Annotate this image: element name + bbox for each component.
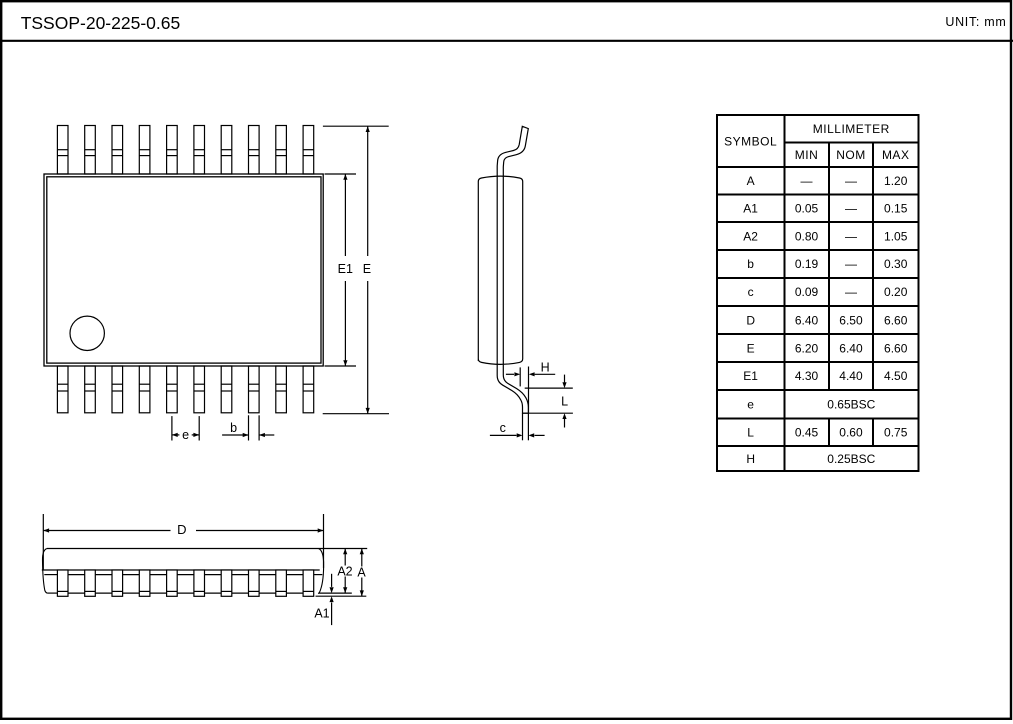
svg-text:A1: A1: [314, 606, 329, 620]
svg-text:SYMBOL: SYMBOL: [724, 135, 777, 149]
svg-text:6.20: 6.20: [795, 341, 819, 355]
svg-text:0.75: 0.75: [884, 426, 908, 440]
svg-text:0.25BSC: 0.25BSC: [827, 452, 875, 466]
svg-text:E1: E1: [743, 369, 758, 383]
svg-text:c: c: [748, 285, 754, 299]
svg-text:—: —: [845, 202, 857, 216]
svg-text:6.40: 6.40: [839, 341, 863, 355]
svg-text:—: —: [845, 285, 857, 299]
svg-text:0.15: 0.15: [884, 202, 908, 216]
svg-text:6.40: 6.40: [795, 313, 819, 327]
svg-text:E: E: [363, 262, 371, 276]
svg-text:A2: A2: [743, 229, 758, 243]
svg-text:0.05: 0.05: [795, 202, 819, 216]
svg-text:MAX: MAX: [882, 148, 910, 162]
svg-text:TSSOP-20-225-0.65: TSSOP-20-225-0.65: [21, 13, 181, 33]
svg-text:0.09: 0.09: [795, 285, 819, 299]
svg-text:A2: A2: [337, 564, 352, 578]
svg-text:6.60: 6.60: [884, 341, 908, 355]
svg-text:—: —: [845, 174, 857, 188]
svg-text:—: —: [801, 174, 813, 188]
svg-text:UNIT: mm: UNIT: mm: [945, 15, 1006, 29]
svg-text:0.30: 0.30: [884, 257, 908, 271]
svg-text:E1: E1: [338, 262, 353, 276]
svg-text:b: b: [230, 421, 237, 435]
svg-text:L: L: [561, 394, 568, 408]
svg-text:b: b: [747, 257, 754, 271]
svg-text:MIN: MIN: [795, 148, 819, 162]
svg-text:0.80: 0.80: [795, 229, 819, 243]
svg-text:1.20: 1.20: [884, 174, 908, 188]
svg-text:MILLIMETER: MILLIMETER: [813, 122, 890, 136]
svg-text:e: e: [182, 428, 189, 442]
svg-text:0.19: 0.19: [795, 257, 819, 271]
svg-text:D: D: [177, 522, 186, 537]
svg-text:A: A: [357, 565, 366, 579]
svg-text:4.30: 4.30: [795, 369, 819, 383]
svg-text:—: —: [845, 229, 857, 243]
svg-text:—: —: [845, 257, 857, 271]
svg-text:c: c: [500, 421, 506, 435]
svg-text:H: H: [541, 360, 550, 374]
svg-text:NOM: NOM: [836, 148, 866, 162]
svg-text:A1: A1: [743, 202, 758, 216]
svg-text:0.65BSC: 0.65BSC: [827, 397, 875, 411]
svg-text:4.50: 4.50: [884, 369, 908, 383]
svg-text:1.05: 1.05: [884, 229, 908, 243]
svg-text:e: e: [747, 397, 754, 411]
svg-text:0.60: 0.60: [839, 426, 863, 440]
svg-text:4.40: 4.40: [839, 369, 863, 383]
svg-text:E: E: [747, 341, 755, 355]
svg-text:0.45: 0.45: [795, 426, 819, 440]
svg-text:A: A: [747, 174, 755, 188]
svg-text:L: L: [747, 426, 754, 440]
svg-text:D: D: [746, 313, 755, 327]
svg-text:0.20: 0.20: [884, 285, 908, 299]
svg-text:6.50: 6.50: [839, 313, 863, 327]
svg-text:6.60: 6.60: [884, 313, 908, 327]
svg-text:H: H: [746, 452, 755, 466]
